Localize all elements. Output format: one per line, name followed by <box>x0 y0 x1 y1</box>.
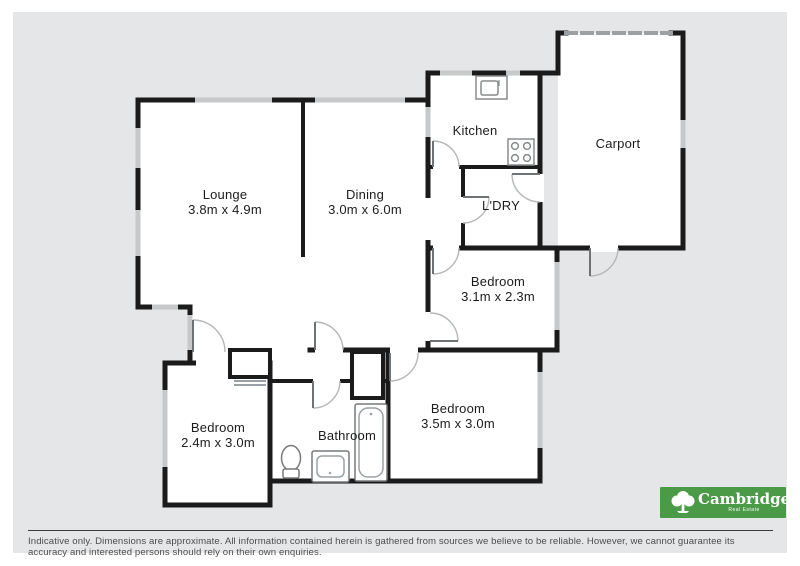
cooktop-icon <box>508 139 534 165</box>
tree-icon <box>668 490 698 516</box>
room-dims: 3.8m x 4.9m <box>188 202 262 217</box>
room-dims: 2.4m x 3.0m <box>181 435 255 450</box>
room-name: Bedroom <box>471 274 525 289</box>
disclaimer-text: Indicative only. Dimensions are approxim… <box>28 536 773 558</box>
toilet-icon <box>282 446 301 479</box>
room-label-bedroom-1: Bedroom 3.1m x 2.3m <box>461 275 535 304</box>
room-name: Lounge <box>203 187 248 202</box>
room-name: Carport <box>596 136 641 151</box>
room-name: Bedroom <box>191 420 245 435</box>
room-dims: 3.5m x 3.0m <box>421 416 495 431</box>
room-label-laundry: L'DRY <box>482 199 520 214</box>
room-label-bedroom-2: Bedroom 2.4m x 3.0m <box>181 421 255 450</box>
room-label-kitchen: Kitchen <box>453 124 498 139</box>
kitchen-sink-icon <box>476 76 507 99</box>
footer-divider <box>28 530 773 531</box>
floorplan-drawing <box>0 0 800 566</box>
floorplan-page: Lounge 3.8m x 4.9m Dining 3.0m x 6.0m Ki… <box>0 0 800 566</box>
room-label-bathroom: Bathroom <box>318 429 376 444</box>
room-label-carport: Carport <box>596 137 641 152</box>
vanity-sink-icon <box>312 451 349 482</box>
room-dims: 3.0m x 6.0m <box>328 202 402 217</box>
hall-linen-closet <box>352 352 383 398</box>
room-dims: 3.1m x 2.3m <box>461 289 535 304</box>
room-label-bedroom-3: Bedroom 3.5m x 3.0m <box>421 402 495 431</box>
room-label-dining: Dining 3.0m x 6.0m <box>328 188 402 217</box>
bedroom2-closet <box>230 350 270 377</box>
logo-brand-text: Cambridge <box>698 492 790 507</box>
room-name: Kitchen <box>453 123 498 138</box>
room-name: Dining <box>346 187 384 202</box>
cambridge-logo: Cambridge Real Estate <box>660 487 786 518</box>
room-label-lounge: Lounge 3.8m x 4.9m <box>188 188 262 217</box>
room-name: L'DRY <box>482 198 520 213</box>
room-name: Bedroom <box>431 401 485 416</box>
room-name: Bathroom <box>318 428 376 443</box>
